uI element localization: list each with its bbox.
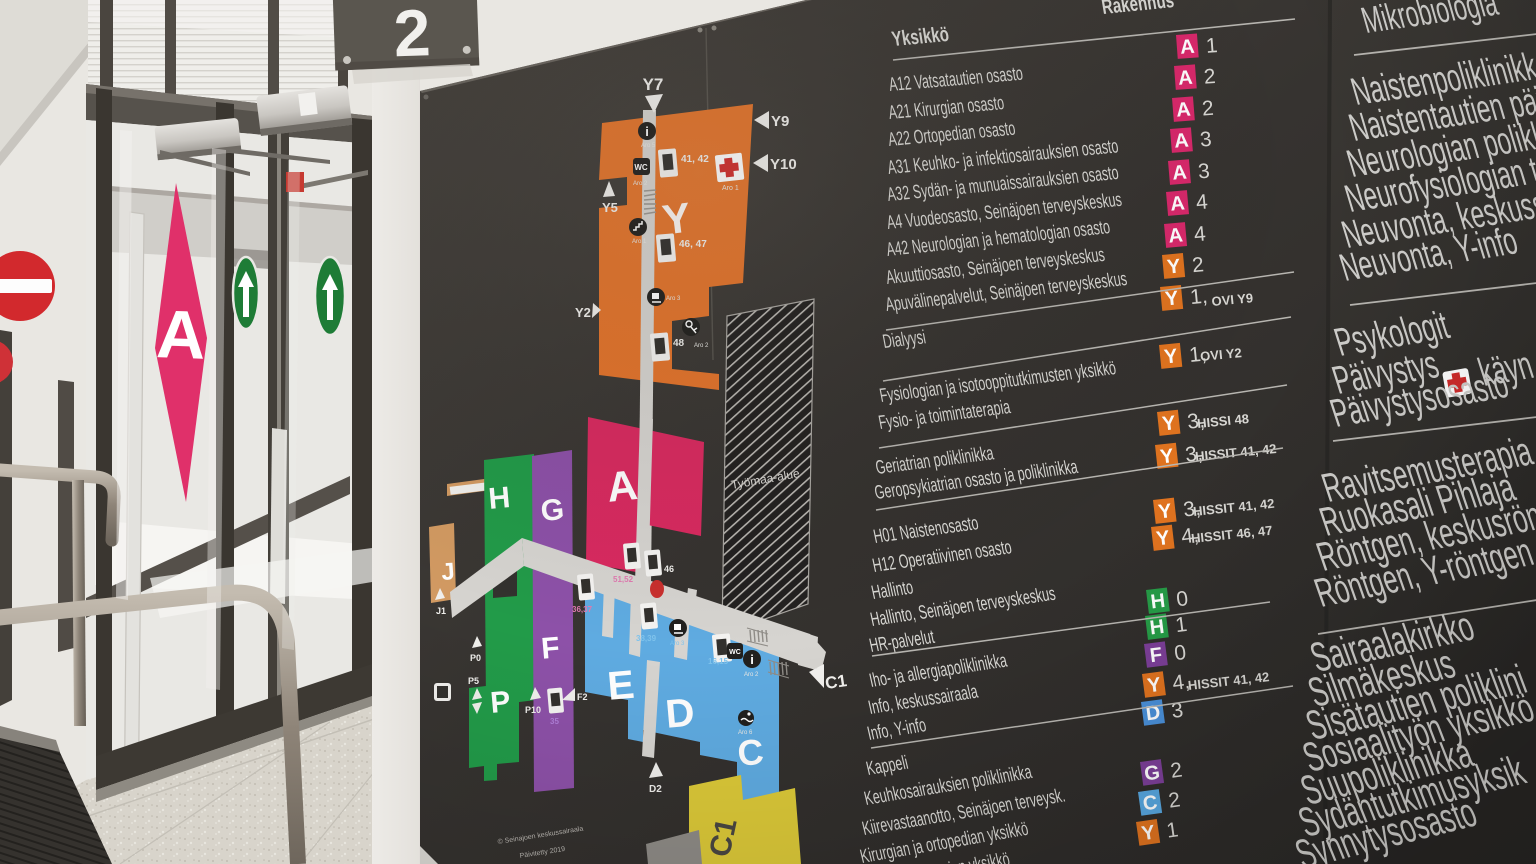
svg-text:A: A <box>155 296 207 374</box>
svg-text:2: 2 <box>392 0 431 70</box>
